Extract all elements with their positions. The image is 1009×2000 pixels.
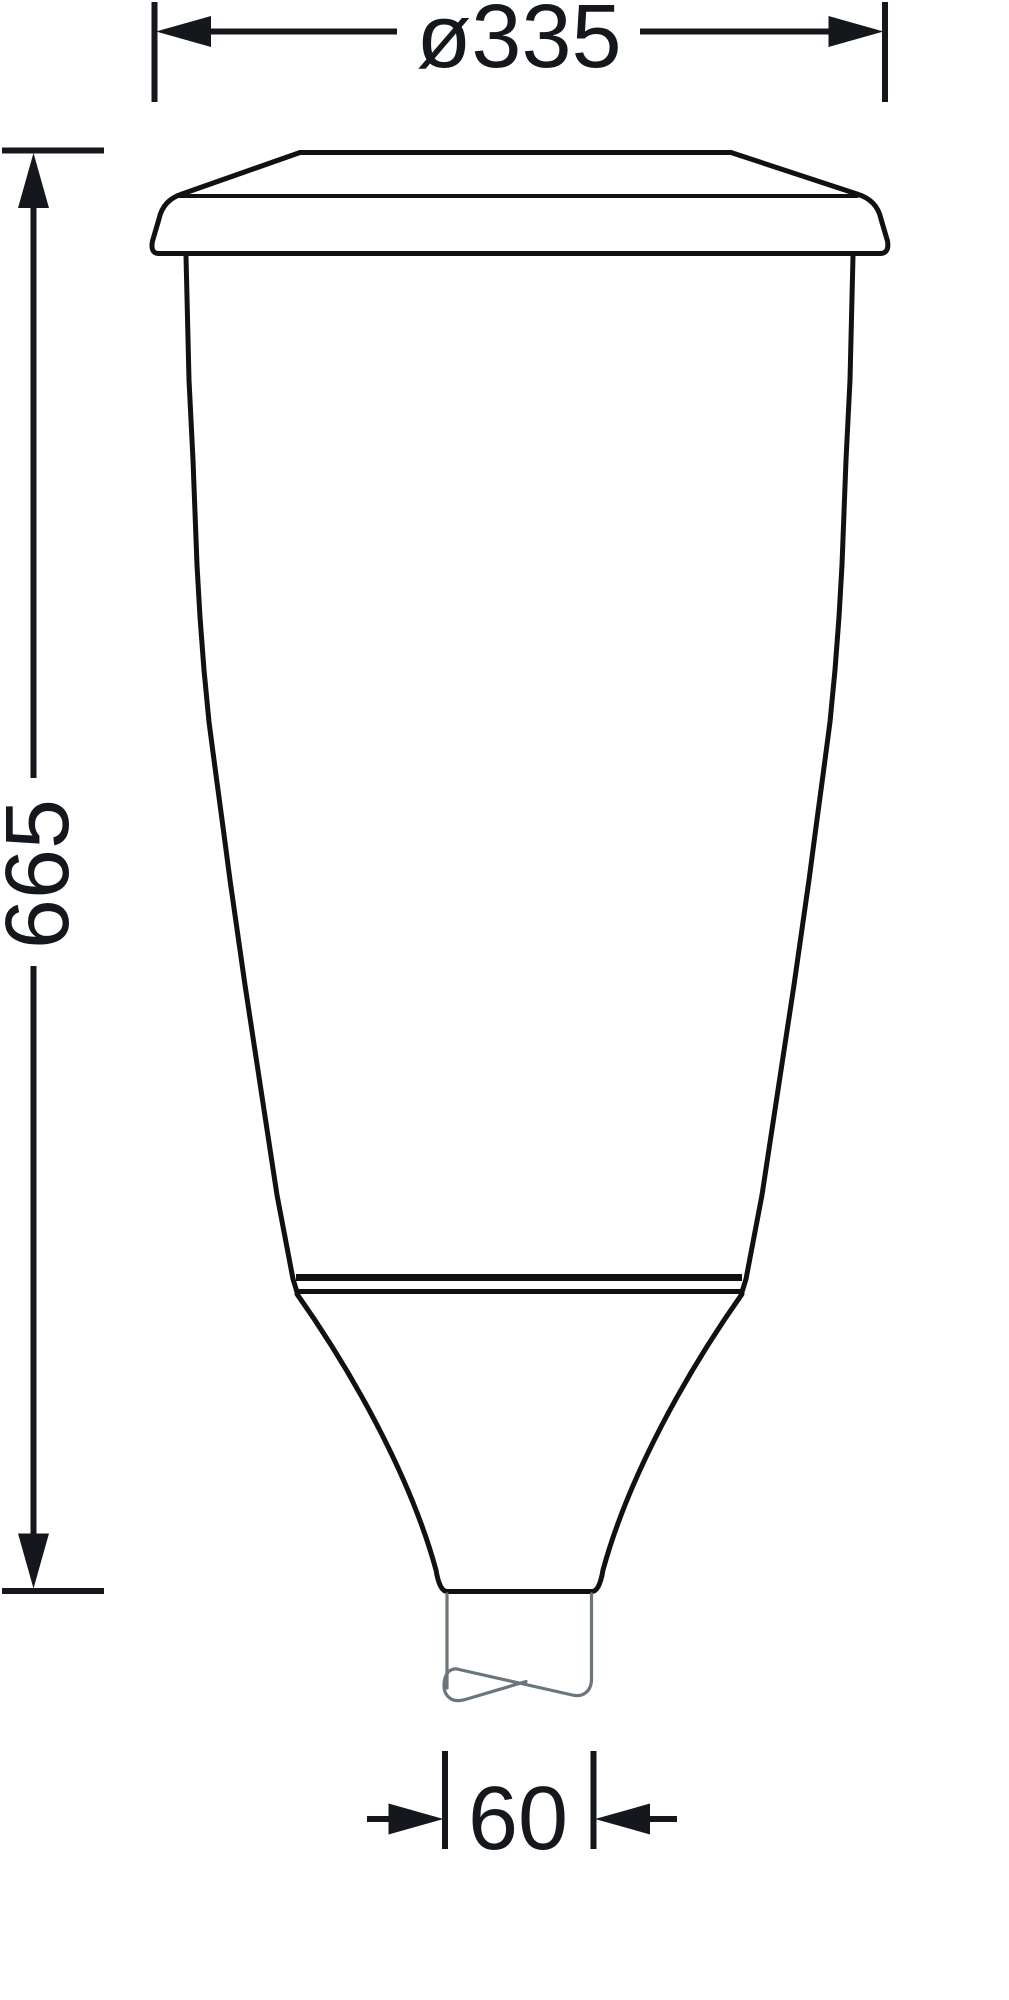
svg-text:ø335: ø335 — [416, 0, 621, 87]
svg-text:665: 665 — [0, 799, 88, 949]
svg-text:60: 60 — [468, 1769, 568, 1869]
